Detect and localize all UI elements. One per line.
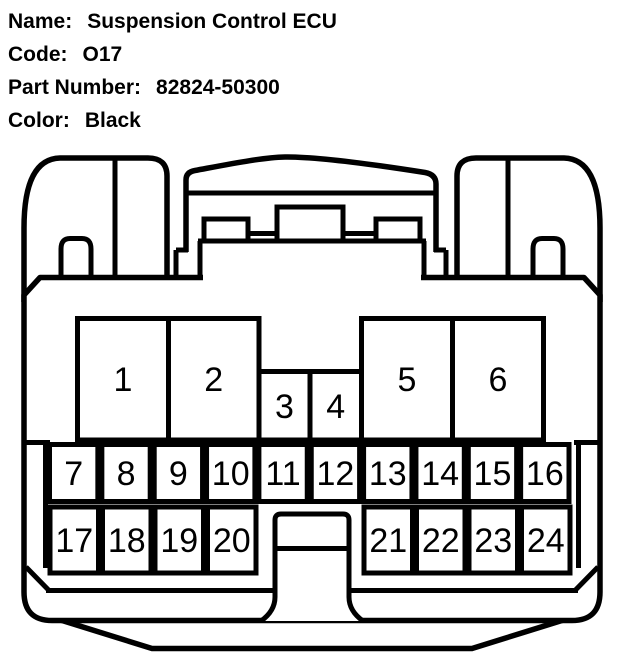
latch-lug-left — [204, 219, 248, 241]
pin-number-4: 4 — [326, 388, 345, 426]
pin-number-20: 20 — [213, 522, 251, 560]
pin-number-14: 14 — [421, 455, 459, 493]
pin-number-2: 2 — [204, 361, 223, 399]
pin-number-11: 11 — [265, 455, 300, 493]
pin-number-6: 6 — [489, 361, 508, 399]
latch-lug-right — [376, 219, 420, 241]
latch-step-right — [434, 250, 446, 278]
page: { "header": { "rows": [ {"label": "Name:… — [0, 0, 624, 664]
pin-number-8: 8 — [117, 455, 136, 493]
latch-lug-center — [277, 207, 343, 241]
connector-diagram: 125634789101112131415161718192021222324 — [0, 0, 624, 664]
key-channel — [261, 514, 363, 621]
latch-step-left — [176, 250, 188, 278]
pin-number-7: 7 — [64, 455, 83, 493]
pin-number-22: 22 — [422, 522, 460, 560]
pin-number-21: 21 — [369, 522, 407, 560]
pin-number-9: 9 — [169, 455, 188, 493]
pin-number-24: 24 — [527, 522, 565, 560]
pin-number-18: 18 — [108, 522, 146, 560]
pin-number-23: 23 — [474, 522, 512, 560]
pin-number-13: 13 — [369, 455, 407, 493]
pin-number-3: 3 — [275, 388, 294, 426]
pin-number-15: 15 — [474, 455, 512, 493]
pin-number-12: 12 — [317, 455, 355, 493]
pin-number-1: 1 — [114, 361, 133, 399]
pin-number-16: 16 — [526, 455, 564, 493]
pin-number-5: 5 — [398, 361, 417, 399]
pin-number-19: 19 — [160, 522, 198, 560]
pin-number-10: 10 — [212, 455, 250, 493]
pin-number-17: 17 — [55, 522, 93, 560]
